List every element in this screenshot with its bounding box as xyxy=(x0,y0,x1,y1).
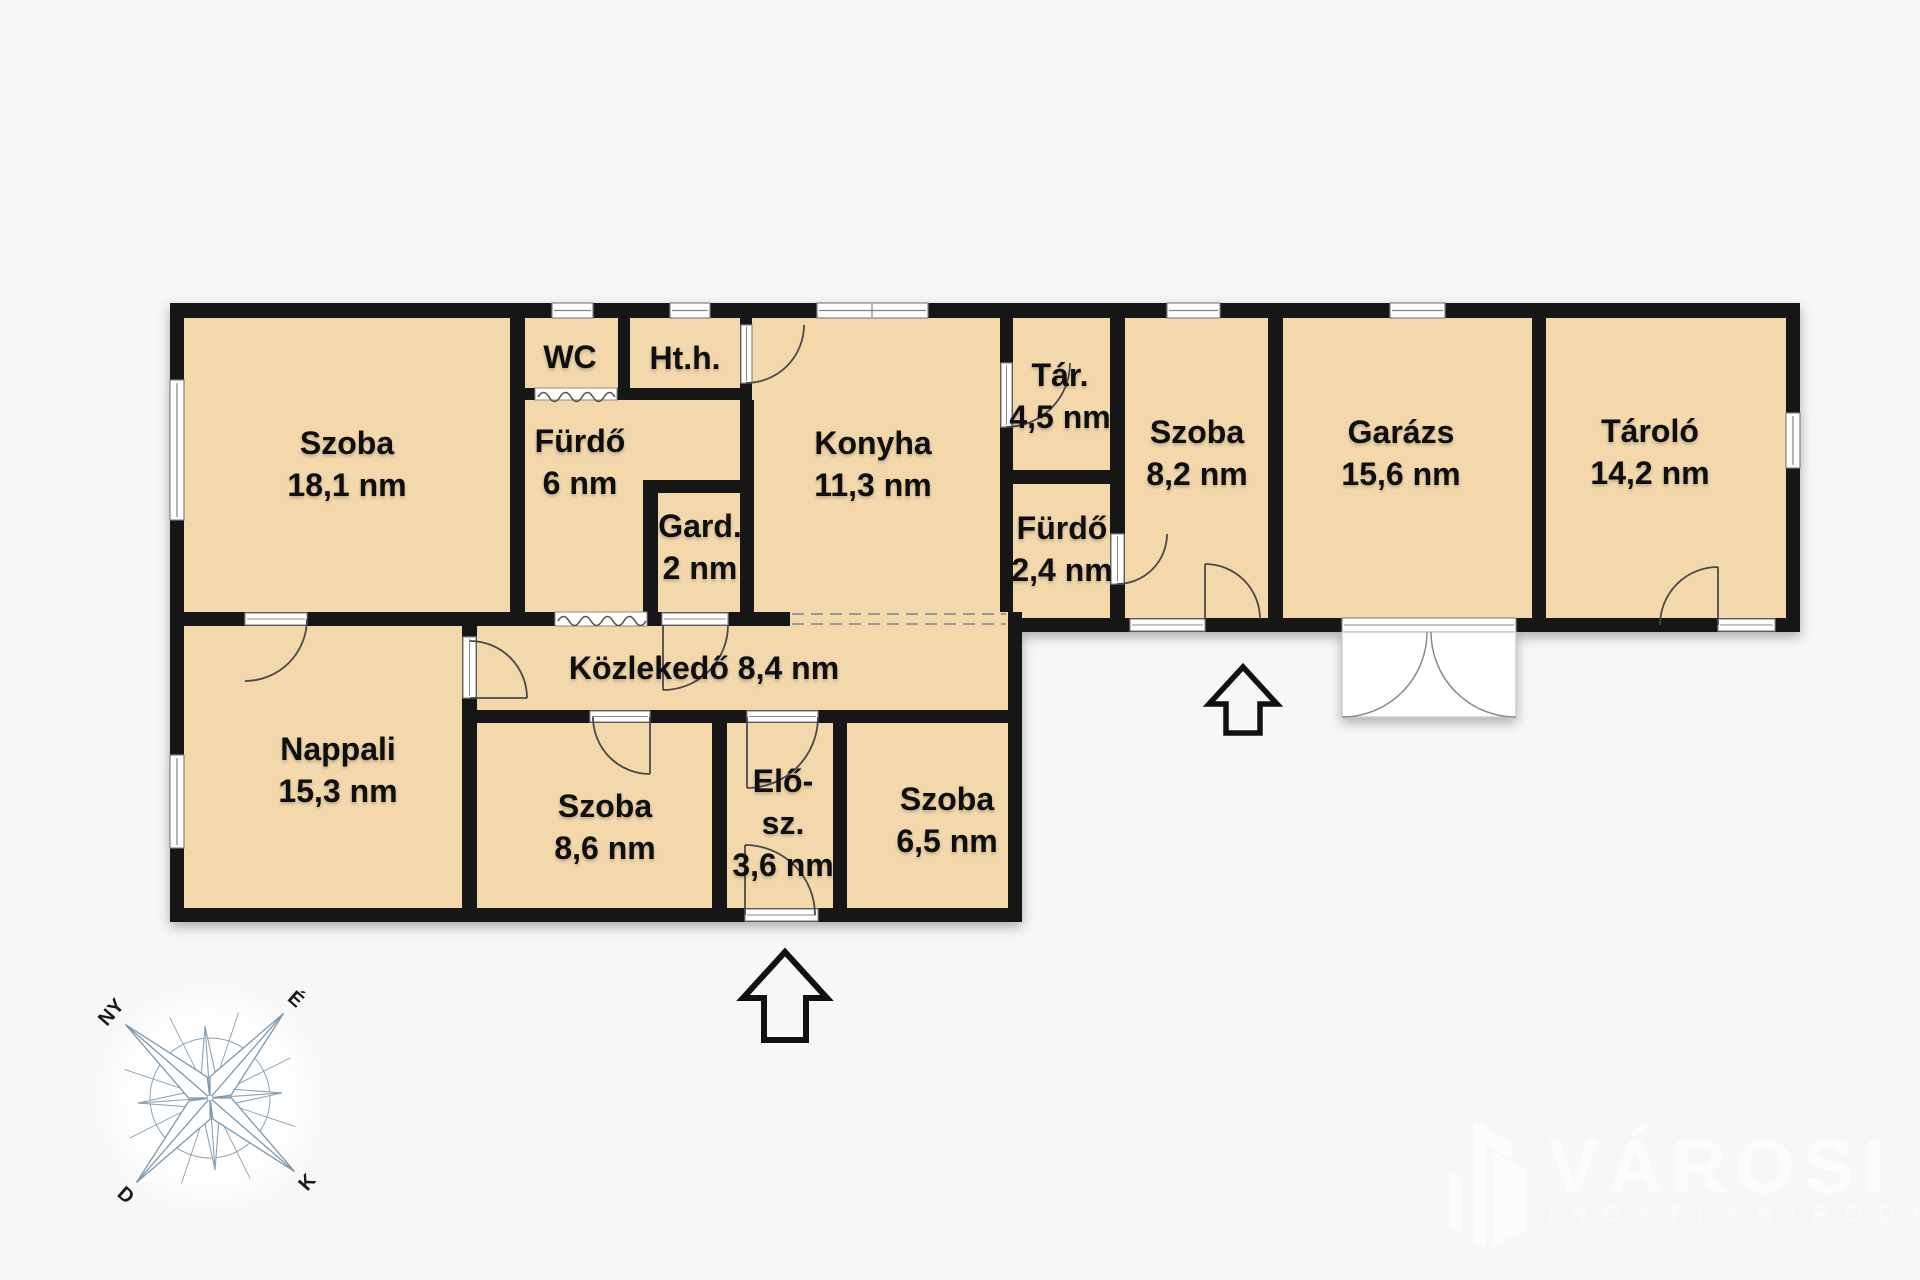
room-label-szoba-8-2: Szoba 8,2 nm xyxy=(1146,411,1247,495)
room-area: 8,2 nm xyxy=(1146,453,1247,495)
room-name: WC xyxy=(543,336,596,378)
dashed-opening xyxy=(790,612,1008,626)
room-label-konyha: Konyha 11,3 nm xyxy=(814,422,931,506)
room-area: 11,3 nm xyxy=(814,464,931,506)
room-label-hth: Ht.h. xyxy=(649,337,720,379)
floorplan-drawing: É NY D K xyxy=(0,0,1920,1280)
room-name: Szoba xyxy=(554,785,655,827)
room-label-kozlekedo: Közlekedő 8,4 nm xyxy=(569,647,839,689)
room-area: 2,4 nm xyxy=(1011,549,1112,591)
room-name: Nappali xyxy=(278,728,397,770)
compass-rose: É NY D K xyxy=(52,940,368,1256)
room-label-gard: Gard. 2 nm xyxy=(658,505,742,589)
room-name: Gard. xyxy=(658,505,742,547)
room-label-tarolo: Tároló 14,2 nm xyxy=(1590,410,1709,494)
room-label-furdo-2-4: Fürdő 2,4 nm xyxy=(1011,507,1112,591)
room-area: 8,6 nm xyxy=(554,827,655,869)
room-name-2: sz. xyxy=(732,802,833,844)
room-area: 2 nm xyxy=(658,547,742,589)
room-name: Tár. xyxy=(1009,354,1110,396)
room-label-szoba-18-1: Szoba 18,1 nm xyxy=(287,422,406,506)
room-label-nappali: Nappali 15,3 nm xyxy=(278,728,397,812)
room-name: Fürdő xyxy=(535,420,626,462)
compass-label-north: É xyxy=(283,986,308,1012)
room-area: 6,5 nm xyxy=(896,820,997,862)
room-area: 18,1 nm xyxy=(287,464,406,506)
floorplan-page: É NY D K Szoba 18,1 nm WC Ht.h. Fürdő 6 … xyxy=(0,0,1920,1280)
room-label-elosz: Elő- sz. 3,6 nm xyxy=(732,760,833,886)
room-area: 14,2 nm xyxy=(1590,452,1709,494)
compass-label-south: D xyxy=(113,1182,138,1208)
room-label-szoba-6-5: Szoba 6,5 nm xyxy=(896,778,997,862)
garage-door xyxy=(1342,632,1516,717)
main-entrance-arrow xyxy=(743,952,827,1040)
room-label-garazs: Garázs 15,6 nm xyxy=(1341,411,1460,495)
room-name: Szoba xyxy=(896,778,997,820)
room-area: 3,6 nm xyxy=(732,844,833,886)
room-area: 4,5 nm xyxy=(1009,396,1110,438)
watermark-subtitle: INGATLANIRODA xyxy=(1548,1200,1884,1227)
room-name: Tároló xyxy=(1590,410,1709,452)
watermark-brand: VÁROSI xyxy=(1548,1124,1884,1211)
room-label-furdo-6: Fürdő 6 nm xyxy=(535,420,626,504)
compass-label-east: K xyxy=(294,1169,320,1195)
room-name: Szoba xyxy=(1146,411,1247,453)
watermark-logo xyxy=(1449,1120,1526,1248)
room-label-tar: Tár. 4,5 nm xyxy=(1009,354,1110,438)
room-area: 15,6 nm xyxy=(1341,453,1460,495)
room-name: Konyha xyxy=(814,422,931,464)
room-name: Szoba xyxy=(287,422,406,464)
room-label-wc: WC xyxy=(543,336,596,378)
floor-upper-band xyxy=(170,303,1800,632)
room-name: Ht.h. xyxy=(649,337,720,379)
room-area: 15,3 nm xyxy=(278,770,397,812)
compass-label-west: NY xyxy=(94,994,129,1030)
room-name: Közlekedő 8,4 nm xyxy=(569,647,839,689)
room-name: Fürdő xyxy=(1011,507,1112,549)
side-entrance-arrow xyxy=(1209,667,1277,733)
room-label-szoba-8-6: Szoba 8,6 nm xyxy=(554,785,655,869)
room-name: Elő- xyxy=(732,760,833,802)
room-name: Garázs xyxy=(1341,411,1460,453)
room-area: 6 nm xyxy=(535,462,626,504)
